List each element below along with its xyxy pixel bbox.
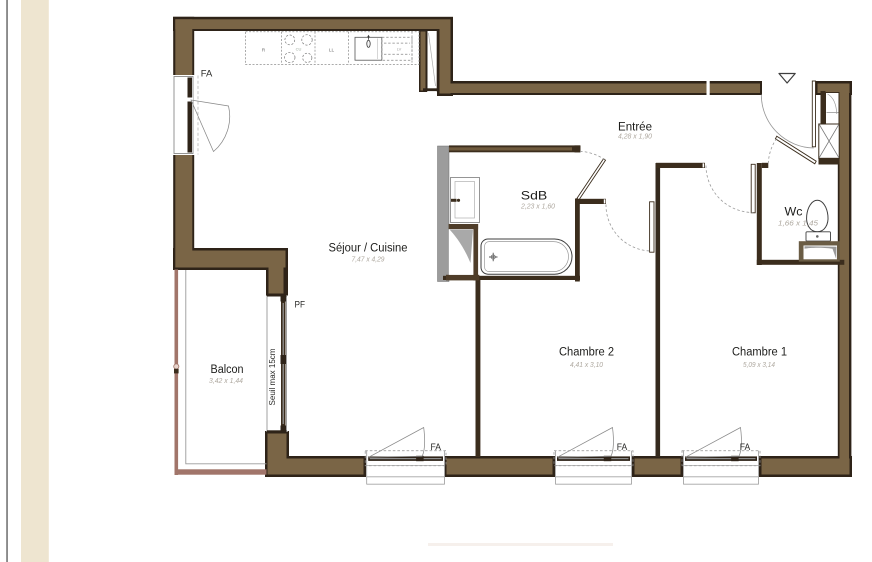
svg-text:FA: FA <box>617 442 628 452</box>
svg-text:5,09 x 3,14: 5,09 x 3,14 <box>743 362 775 369</box>
svg-text:FA: FA <box>430 442 441 452</box>
svg-text:7,47 x 4,29: 7,47 x 4,29 <box>352 257 385 264</box>
svg-text:Chambre 2: Chambre 2 <box>559 347 614 359</box>
svg-text:3,42 x 1,44: 3,42 x 1,44 <box>209 378 243 385</box>
svg-text:Séjour / Cuisine: Séjour / Cuisine <box>329 242 408 254</box>
svg-text:4,28 x 1,90: 4,28 x 1,90 <box>618 133 652 140</box>
svg-text:1,66 x 1,45: 1,66 x 1,45 <box>778 221 818 228</box>
svg-text:LL: LL <box>329 47 335 53</box>
svg-text:4,41 x 3,10: 4,41 x 3,10 <box>570 362 603 369</box>
svg-text:FA: FA <box>740 442 751 452</box>
svg-text:Wc: Wc <box>785 207 803 219</box>
svg-text:Seuil max 15cm: Seuil max 15cm <box>268 348 277 405</box>
svg-text:LV: LV <box>397 47 402 52</box>
svg-text:2,23 x 1,60: 2,23 x 1,60 <box>520 204 555 211</box>
svg-text:Entrée: Entrée <box>618 122 652 134</box>
svg-text:R: R <box>262 47 266 53</box>
svg-text:Chambre 1: Chambre 1 <box>732 347 787 359</box>
svg-text:PF: PF <box>295 299 306 309</box>
svg-text:Balcon: Balcon <box>211 364 244 376</box>
svg-text:FA: FA <box>201 68 213 78</box>
svg-text:CU: CU <box>296 47 302 52</box>
svg-text:SdB: SdB <box>521 189 548 203</box>
